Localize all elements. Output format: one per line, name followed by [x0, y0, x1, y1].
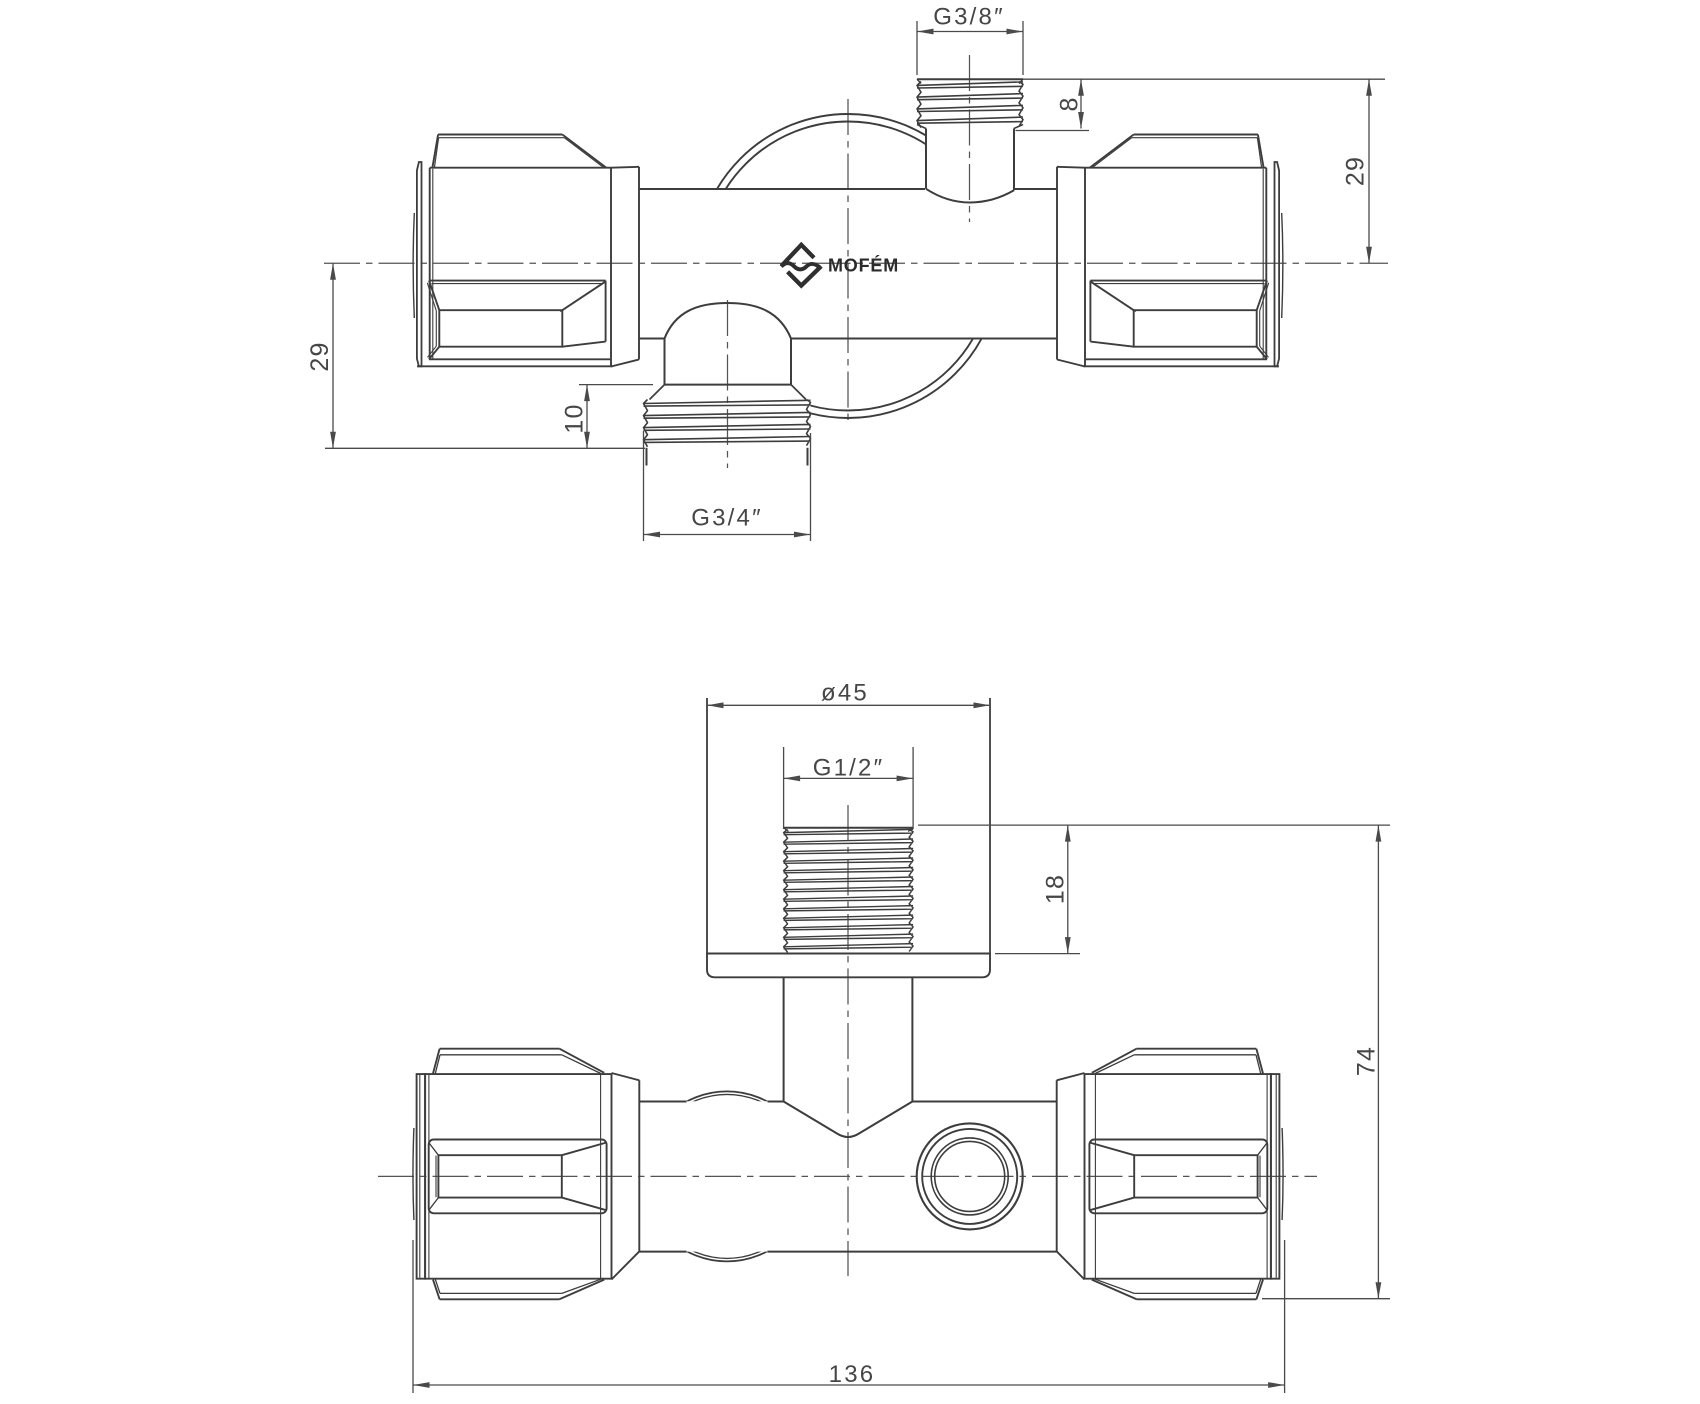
svg-text:18: 18: [1042, 874, 1070, 904]
svg-text:136: 136: [829, 1361, 876, 1388]
svg-text:MOFÉM: MOFÉM: [828, 255, 899, 276]
svg-text:74: 74: [1353, 1046, 1381, 1076]
svg-text:29: 29: [1342, 156, 1370, 186]
svg-text:G3/4″: G3/4″: [691, 505, 763, 532]
svg-text:8: 8: [1056, 96, 1084, 111]
svg-text:10: 10: [561, 403, 589, 433]
svg-text:G3/8″: G3/8″: [933, 4, 1005, 31]
svg-text:ø45: ø45: [821, 680, 869, 707]
svg-text:G1/2″: G1/2″: [813, 755, 885, 782]
svg-text:29: 29: [306, 341, 334, 371]
